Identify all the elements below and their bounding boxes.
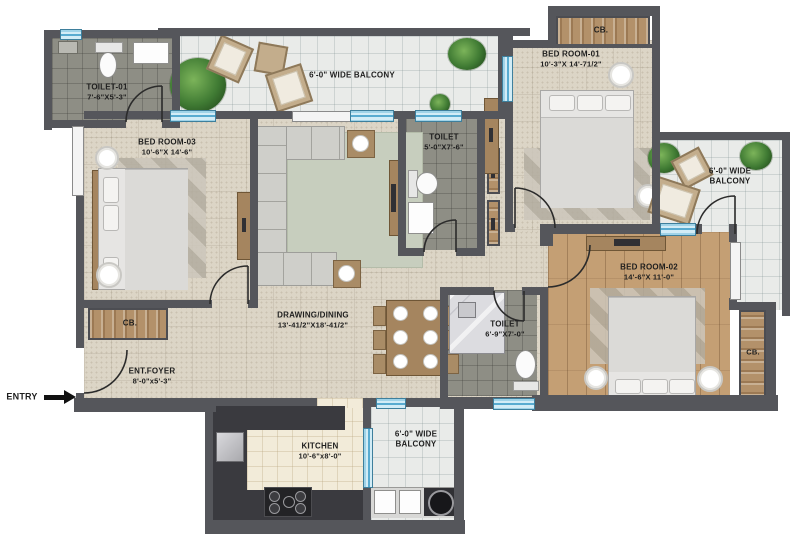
wall (404, 398, 458, 407)
room-label-bedroom02: BED ROOM-02 14'-6"X 11'-0" (620, 263, 678, 282)
closet-label-foyer: CB. (123, 318, 137, 328)
room-label-bedroom03: BED ROOM-03 10'-6"X 14'-6" (138, 138, 196, 157)
window (493, 398, 535, 410)
window (730, 242, 741, 300)
wall (44, 30, 52, 130)
floor-plan: ENTRY TOILET-01 7'-6"X5'-3" 6'-0" WIDE B… (0, 0, 790, 535)
room-label-toilet01: TOILET-01 7'-6"X5'-3" (86, 83, 127, 102)
wall (782, 132, 790, 316)
window (170, 110, 216, 122)
wall (84, 111, 170, 119)
window (376, 398, 406, 409)
room-label-toilet-mid: TOILET 5'-0"X7'-6" (424, 133, 464, 152)
wall (440, 287, 448, 397)
entry-arrow-head (64, 390, 76, 404)
sofa-bottom (255, 252, 337, 286)
room-label-kitchen: KITCHEN 10'-6"x8'-0" (298, 442, 341, 461)
balcony-door-glass (363, 428, 373, 488)
wall (548, 6, 660, 16)
wall (398, 248, 424, 256)
dresser-handle (242, 218, 246, 232)
window (660, 223, 696, 236)
shower-drain (458, 302, 476, 318)
wall (505, 224, 515, 232)
room-label-bedroom01: BED ROOM-01 10'-3"X 14'-71/2" (540, 50, 602, 69)
wall (205, 520, 465, 534)
room-label-balcony-right: 6'-0" WIDE BALCONY (709, 167, 751, 186)
wall (205, 398, 213, 534)
wash-sink (374, 490, 396, 514)
toilet-bowl (99, 52, 117, 78)
room-label-foyer: ENT.FOYER 8'-0"x5'-3" (129, 367, 176, 386)
tv (391, 184, 396, 212)
side-table (96, 262, 122, 288)
side-table (697, 366, 723, 392)
window (350, 110, 394, 122)
wall (556, 44, 652, 48)
wall (652, 6, 660, 140)
stove (264, 487, 312, 517)
wall (205, 398, 317, 406)
wall (250, 111, 258, 308)
bed-bedroom01 (540, 90, 634, 208)
toilet-bowl (515, 350, 536, 379)
wall (158, 28, 530, 36)
window (292, 111, 352, 122)
wall (74, 398, 216, 412)
room-label-drawing-dining: DRAWING/DINING 13'-41/2"X18'-41/2" (277, 311, 349, 330)
toilet-bowl (416, 172, 438, 195)
window (415, 110, 462, 122)
wall (363, 486, 371, 534)
sink (133, 42, 169, 64)
wall (540, 224, 662, 234)
wall (477, 111, 485, 256)
wall (540, 224, 553, 246)
plant (448, 38, 486, 70)
room-label-balcony-top: 6'-0" WIDE BALCONY (309, 70, 395, 80)
wall (532, 395, 778, 411)
wall (248, 300, 258, 308)
wall (522, 287, 545, 295)
wash-sink (399, 490, 421, 514)
closet-label-top: CB. (594, 25, 608, 35)
wall (729, 224, 737, 242)
dining-chair (373, 330, 386, 350)
shelf (58, 41, 78, 54)
wall (766, 308, 776, 408)
closet-label-bedroom02: CB. (746, 347, 760, 357)
side-table (584, 366, 608, 390)
window (502, 56, 513, 102)
bed-bedroom02 (608, 296, 696, 396)
vanity (408, 202, 434, 234)
room-label-balcony-bottom: 6'-0" WIDE BALCONY (395, 430, 437, 449)
side-table (608, 62, 634, 88)
side-table (95, 146, 119, 170)
room-label-toilet2: TOILET 6'-9"X7'-0" (485, 320, 525, 339)
dresser-handle (489, 128, 493, 142)
wall (363, 398, 371, 428)
washing-machine-door (428, 490, 454, 516)
wall (44, 120, 126, 128)
entry-label: ENTRY (6, 392, 37, 402)
wall (540, 287, 548, 399)
wall (652, 132, 790, 140)
window (60, 29, 82, 40)
toilet-tank (513, 381, 539, 391)
desk-item (614, 239, 640, 246)
wall (652, 132, 660, 232)
dining-chair (373, 354, 386, 374)
fridge (216, 432, 244, 462)
wall (84, 300, 212, 308)
window (72, 126, 84, 196)
dining-chair (373, 306, 386, 326)
wall (398, 111, 406, 256)
entry-arrow (44, 395, 64, 400)
wall (454, 398, 464, 534)
wall (440, 287, 494, 295)
wall (456, 248, 485, 256)
wardrobe-handle (491, 218, 495, 230)
